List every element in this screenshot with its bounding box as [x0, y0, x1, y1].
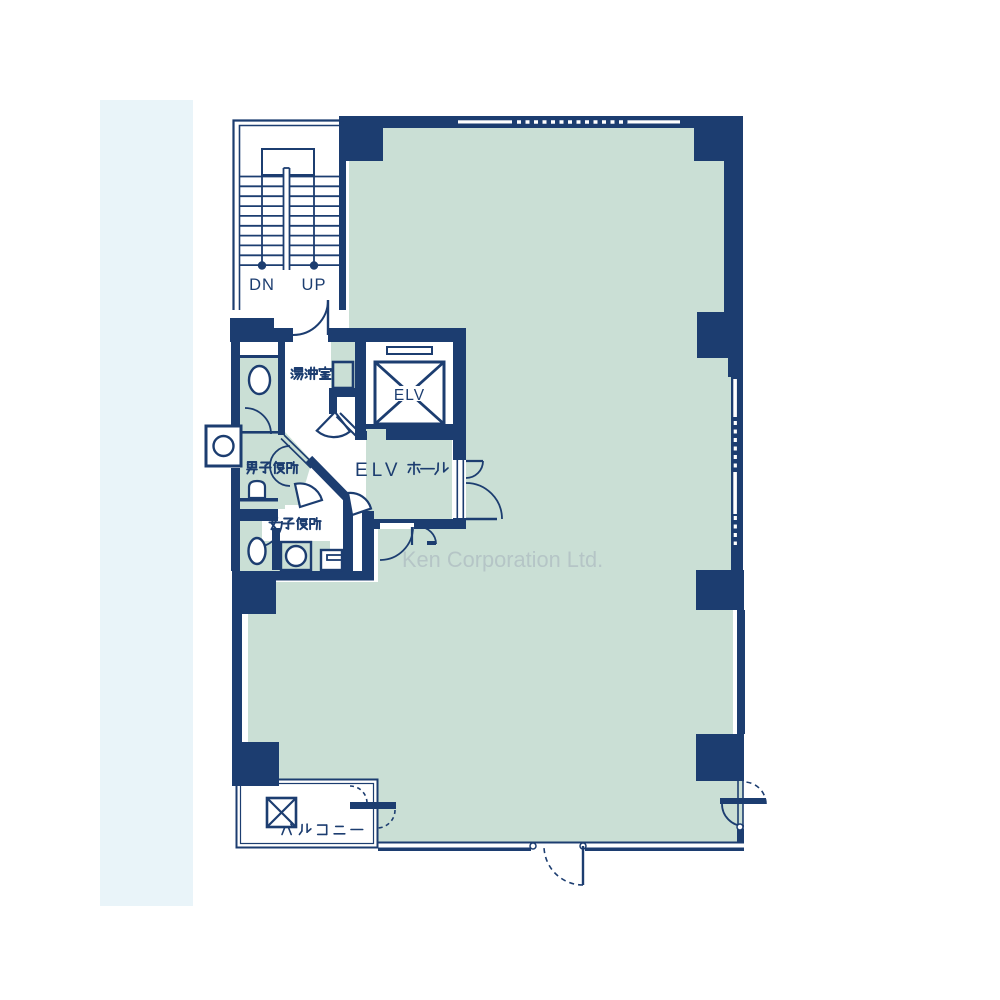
- svg-text:ELV: ELV: [394, 387, 425, 404]
- svg-text:ELV: ELV: [355, 460, 402, 481]
- svg-text:Ken Corporation Ltd.: Ken Corporation Ltd.: [402, 547, 603, 572]
- svg-text:DN: DN: [249, 276, 275, 294]
- svg-text:UP: UP: [302, 276, 327, 294]
